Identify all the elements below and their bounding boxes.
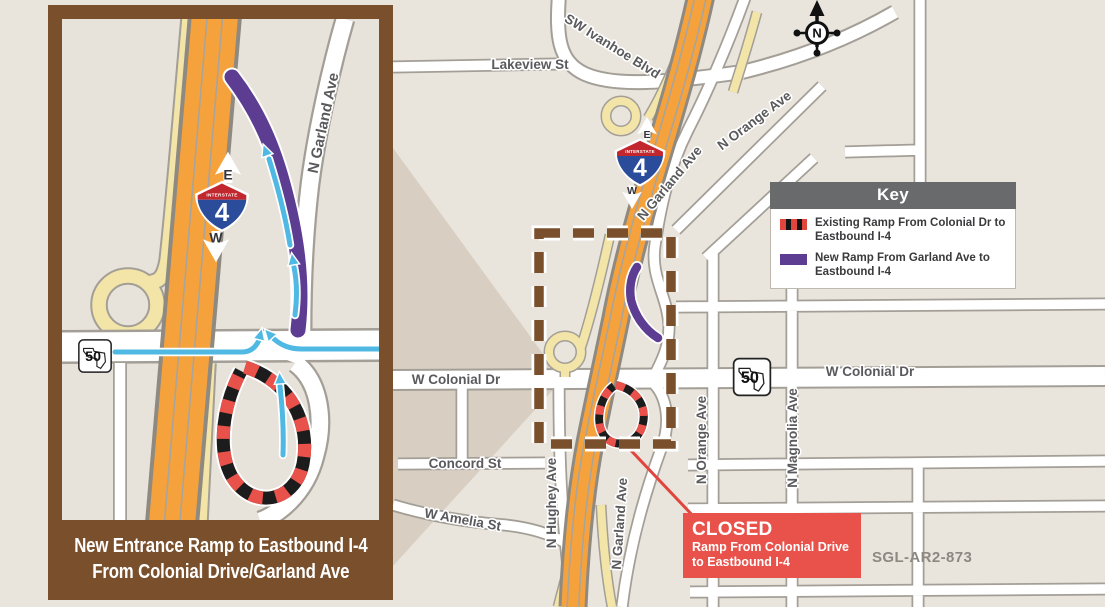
key-item-label: New Ramp From Garland Ave to Eastbound I… — [815, 251, 1006, 279]
compass-n-label: N — [812, 26, 821, 41]
inset-caption: New Entrance Ramp to Eastbound I-4 From … — [62, 520, 379, 598]
closed-line-2: to Eastbound I-4 — [692, 555, 852, 570]
caption-line-2: From Colonial Drive/Garland Ave — [92, 559, 349, 585]
route-50-shield-icon: 50 — [79, 340, 111, 372]
new-ramp-swatch-icon — [780, 254, 807, 265]
map-page: E INTERSTATE 4 W 50 — [0, 0, 1105, 607]
caption-line-1: New Entrance Ramp to Eastbound I-4 — [74, 533, 367, 559]
label-concord: Concord St — [429, 456, 502, 471]
interstate-label: INTERSTATE — [625, 149, 655, 154]
key-item-new-ramp: New Ramp From Garland Ave to Eastbound I… — [780, 251, 1006, 279]
label-colonial-left: W Colonial Dr — [412, 372, 501, 387]
existing-ramp-swatch-icon — [780, 219, 807, 230]
closed-title: CLOSED — [692, 519, 852, 540]
closed-callout: CLOSED Ramp From Colonial Drive to Eastb… — [683, 513, 861, 578]
east-label: E — [223, 167, 232, 183]
label-hughey: N Hughey Ave — [544, 457, 559, 548]
label-magnolia: N Magnolia Ave — [785, 388, 800, 488]
label-orange-lower: N Orange Ave — [694, 395, 709, 484]
key-title: Key — [770, 182, 1016, 209]
label-lakeview: Lakeview St — [491, 57, 569, 72]
key-body: Existing Ramp From Colonial Dr to Eastbo… — [770, 209, 1016, 289]
route-number: 4 — [633, 155, 647, 182]
route-50-shield-icon: 50 — [734, 359, 771, 396]
east-label: E — [643, 129, 650, 141]
inset-panel: E INTERSTATE 4 W 50 — [48, 5, 393, 600]
closed-line-1: Ramp From Colonial Drive — [692, 540, 852, 555]
key-item-existing-ramp: Existing Ramp From Colonial Dr to Eastbo… — [780, 216, 1006, 244]
inset-map: E INTERSTATE 4 W 50 — [62, 19, 379, 520]
west-label: W — [627, 185, 637, 197]
map-key: Key Existing Ramp From Colonial Dr to Ea… — [770, 182, 1016, 289]
label-colonial-right: W Colonial Dr — [826, 364, 915, 379]
route-50-number: 50 — [741, 369, 759, 387]
west-label: W — [209, 230, 223, 246]
reference-code: SGL-AR2-873 — [872, 549, 972, 566]
route-50-number: 50 — [85, 349, 101, 365]
key-item-label: Existing Ramp From Colonial Dr to Eastbo… — [815, 216, 1006, 244]
route-number: 4 — [215, 197, 230, 227]
